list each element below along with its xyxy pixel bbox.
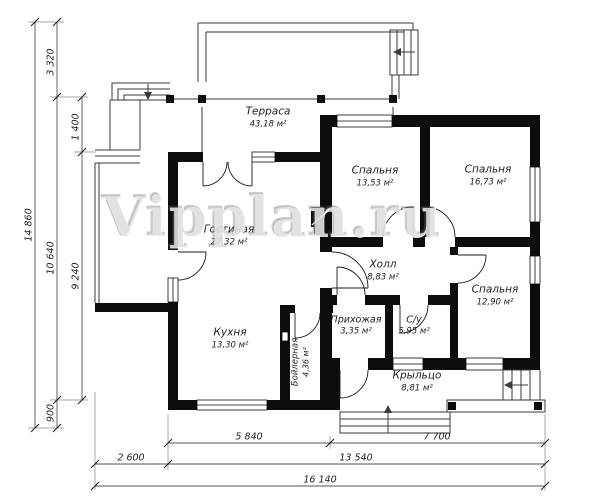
door-entrance [340,370,368,398]
dim-bottom-house: 5 840 [235,432,262,443]
room-name: Бойлерная [290,338,301,387]
room-label-porch: Крыльцо 8,81 м² [393,370,442,395]
room-name: Спальня [472,284,519,298]
window-living-top [252,152,275,162]
room-area: 8,81 м² [393,383,442,394]
window-kitchen-bottom [197,400,267,410]
window-bedroom1-top [337,115,392,127]
room-label-hall: Холл 8,83 м² [367,259,398,284]
boiler-equipment [282,332,288,341]
dimension-ticks [31,18,549,490]
room-label-terrace: Терраса 43,18 м² [246,106,291,131]
dim-bottom-left: 2 600 [117,453,144,464]
watermark: Vipplan.ru [102,184,442,250]
room-name: Крыльцо [393,370,442,384]
dim-left-house: 9 240 [71,262,82,289]
room-name: Спальня [465,164,512,178]
porch-steps [340,370,545,433]
door-living-side-terrace [178,252,206,280]
room-name: Прихожая [331,314,382,326]
room-area: 3,35 м² [331,327,382,338]
room-name: Кухня [212,327,249,341]
dim-bottom-total: 16 140 [303,475,336,486]
window-bedroom2-right [530,167,540,222]
window-bedroom3-right [530,256,540,284]
terrace-stairs [144,30,418,100]
dim-left-upper: 3 320 [46,48,57,75]
room-label-kitchen: Кухня 13,30 м² [212,327,249,352]
room-name: С/у [398,314,429,326]
room-name: Спальня [352,165,399,179]
door-terrace-french [203,162,252,186]
door-entry-hall [337,267,365,295]
room-area: 13,30 м² [212,340,249,351]
terrace-outline [95,23,413,303]
room-label-bathroom: С/у 5,95 м² [398,314,429,337]
room-label-boiler: Бойлерная 4,36 м² [290,338,311,387]
room-area: 43,18 м² [246,119,291,130]
room-area: 8,83 м² [367,272,398,283]
windows [168,115,540,410]
room-label-bedroom3: Спальня 12,90 м² [472,284,519,309]
room-area: 5,95 м² [398,327,429,338]
dim-left-total: 14 860 [24,208,35,241]
floor-plan-page: Терраса 43,18 м² Спальня 13,53 м² Спальн… [0,0,600,501]
dim-bottom-porch: 7 700 [423,432,450,443]
room-name: Терраса [246,106,291,120]
dim-left-lower: 900 [46,404,57,422]
dim-left-span: 10 640 [46,241,57,274]
dim-bottom-span: 13 540 [339,453,372,464]
porch-columns [448,402,542,410]
window-bathroom-bottom [393,358,423,370]
dimension-lines [28,22,545,491]
room-area: 4,36 м² [301,338,311,387]
window-living-left [168,278,178,302]
room-area: 16,73 м² [465,177,512,188]
room-label-bedroom2: Спальня 16,73 м² [465,164,512,189]
room-label-entry: Прихожая 3,35 м² [331,314,382,337]
room-area: 12,90 м² [472,297,519,308]
door-bedroom3 [458,255,486,283]
window-bedroom3-bottom [466,358,503,370]
room-name: Холл [367,259,398,273]
dim-left-terrace: 1 400 [71,113,82,140]
floor-plan-drawing [0,0,600,501]
door-boiler [295,313,320,338]
